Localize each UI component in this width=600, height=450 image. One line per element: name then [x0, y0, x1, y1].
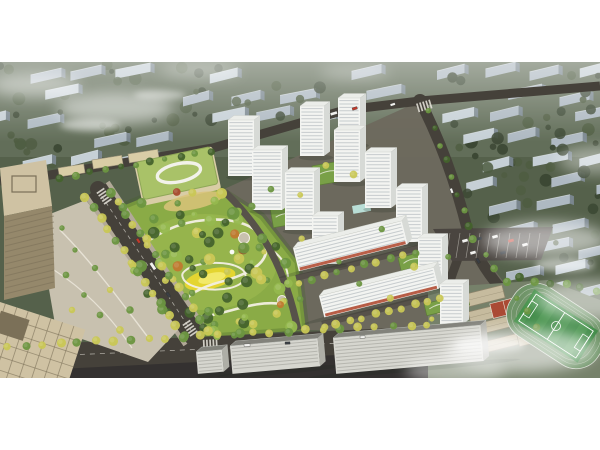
- masterplan-aerial-rendering: [0, 0, 600, 450]
- rendering-page: [0, 0, 600, 450]
